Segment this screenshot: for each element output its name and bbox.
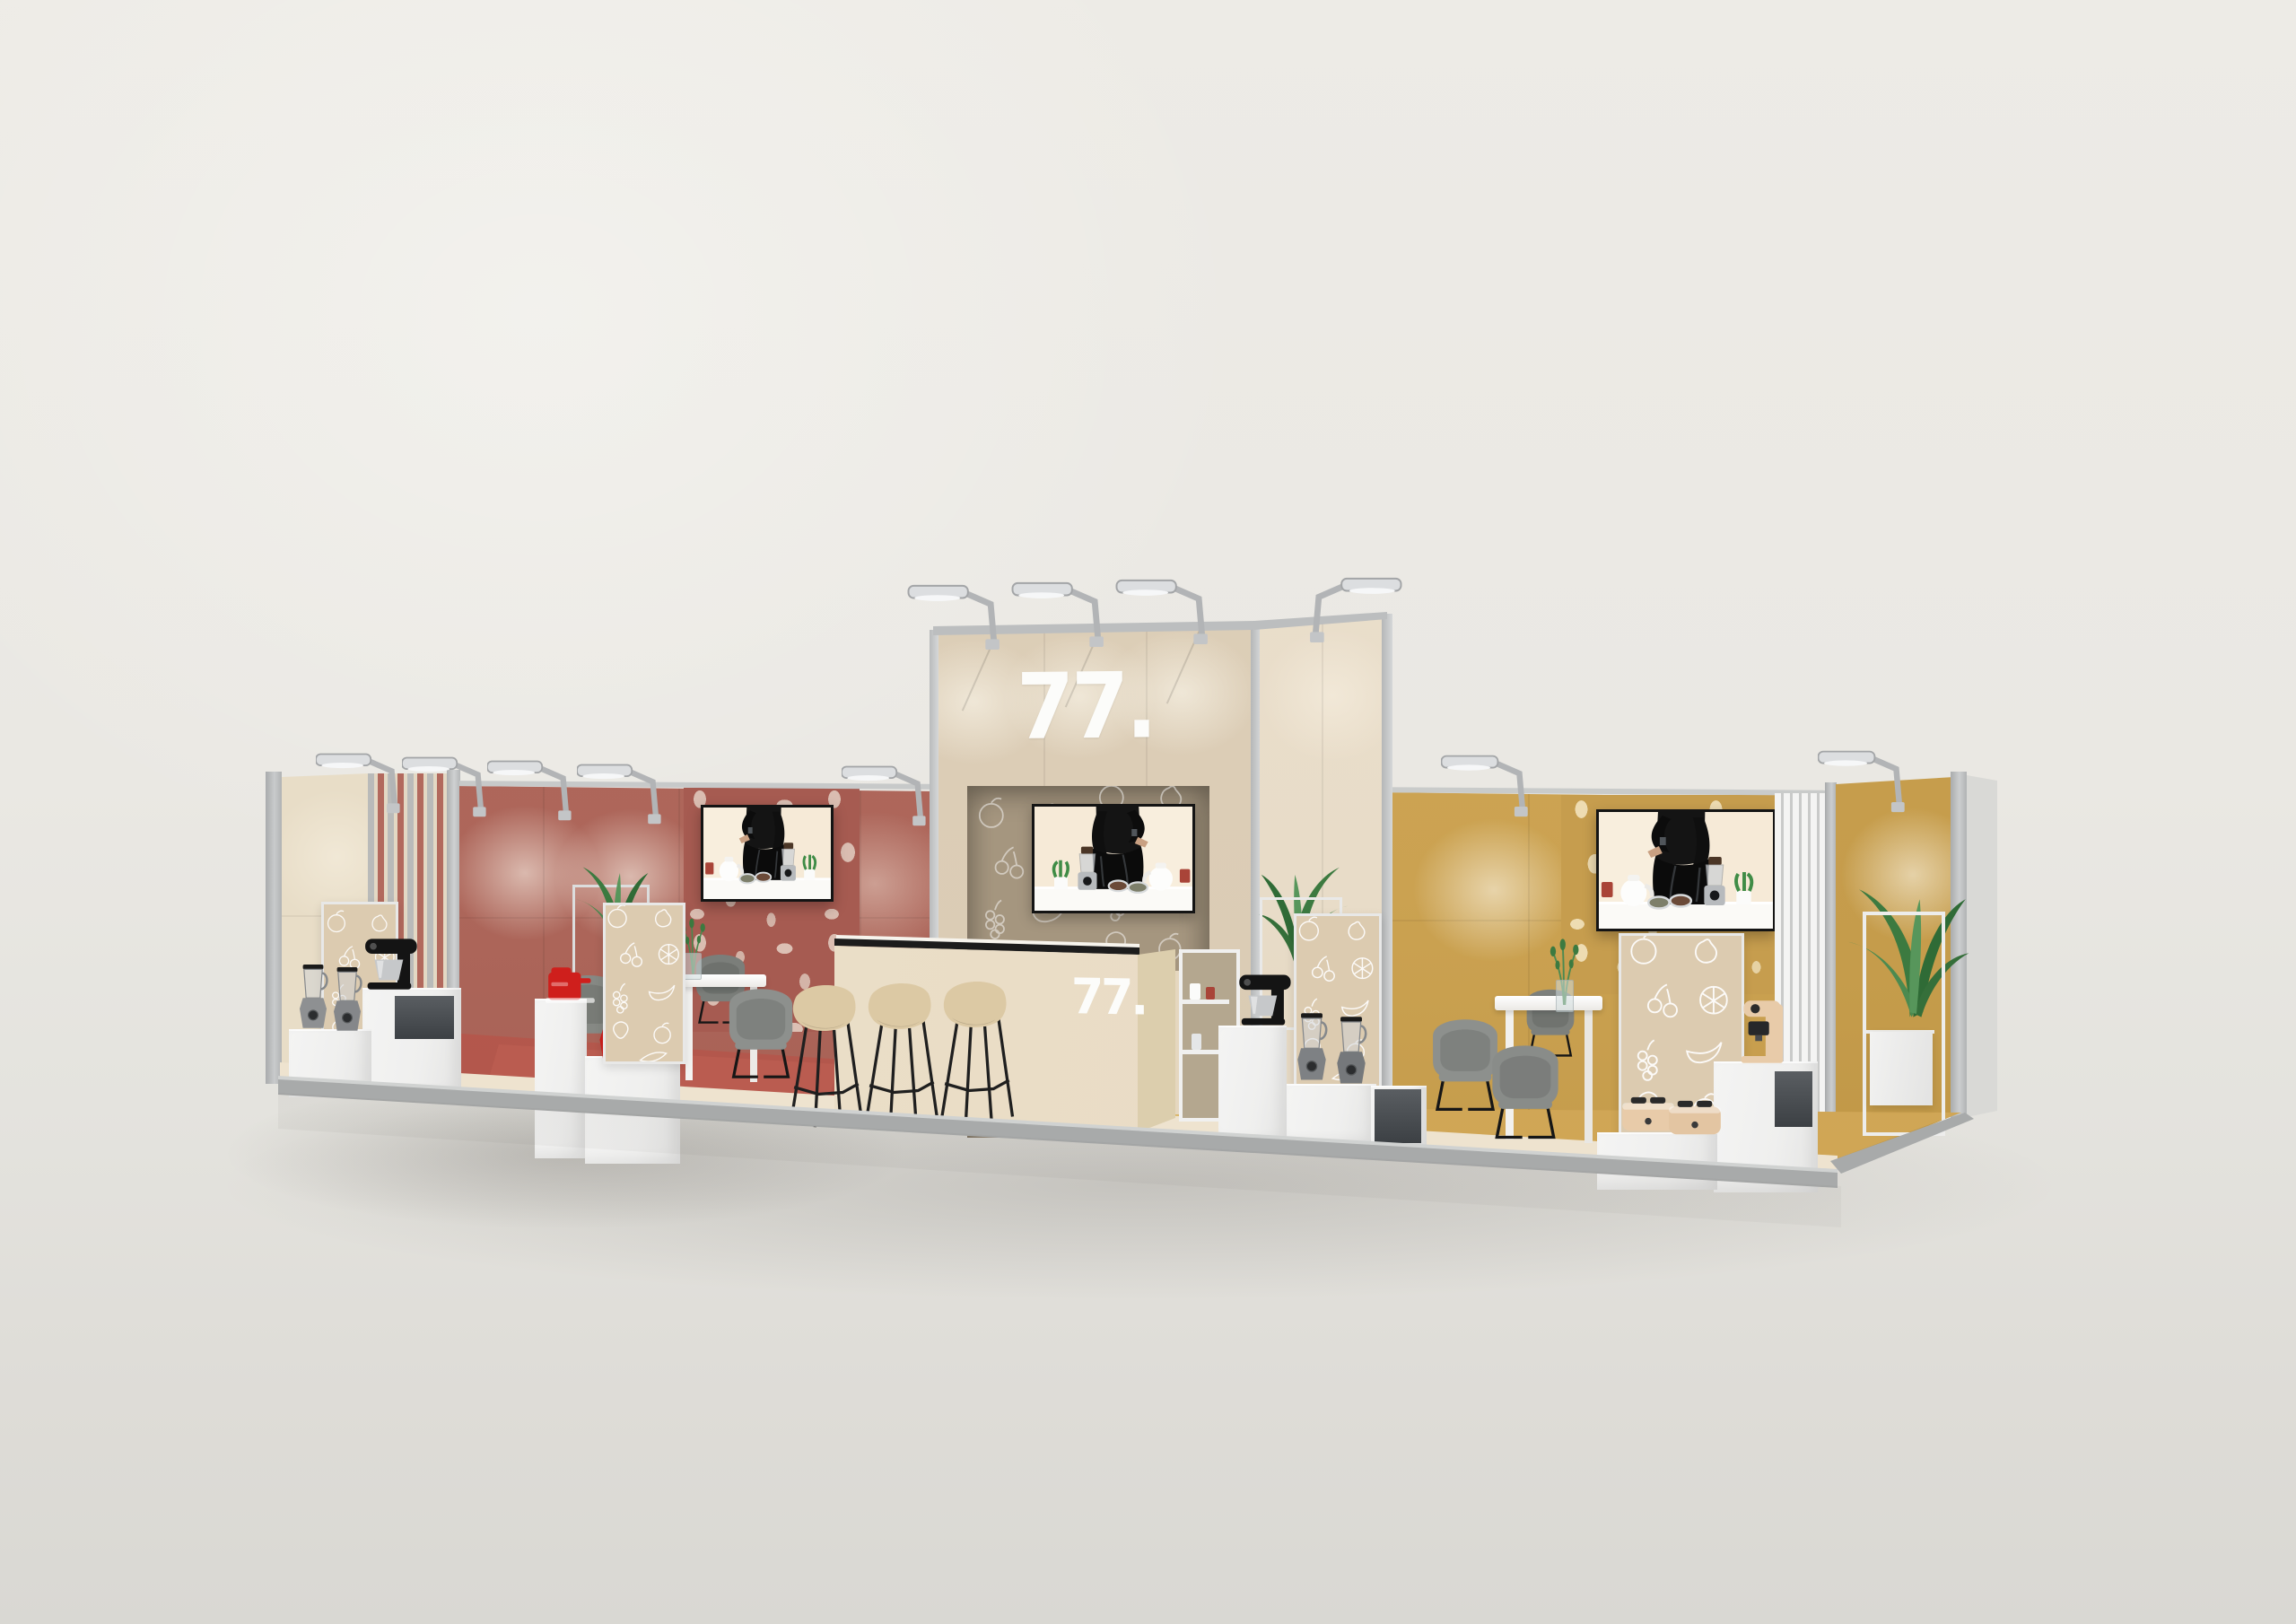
- black-stand-mixer: [357, 933, 434, 991]
- exhibition-booth-render: 77.: [0, 0, 2296, 1624]
- red-bay-tv: [701, 805, 834, 902]
- center-tv: [1032, 804, 1195, 913]
- left-end-post: [266, 772, 282, 1084]
- left-table-leg: [685, 985, 693, 1080]
- display-cube-gold-niche: [1775, 1071, 1812, 1127]
- spotlight: [842, 763, 938, 827]
- gray-dining-chair: [1480, 1016, 1570, 1156]
- plant-stand-planter-box: [1870, 1032, 1933, 1105]
- bar-stand-number: 77.: [1071, 973, 1146, 1023]
- gray-blender: [1331, 1012, 1371, 1089]
- spotlight: [316, 750, 413, 815]
- spotlight: [402, 754, 499, 818]
- silver-blender: [294, 962, 332, 1032]
- bar-stool: [930, 974, 1019, 1129]
- doodle-panel-red-bay: [603, 903, 685, 1064]
- spotlight: [487, 757, 584, 822]
- spotlight: [1818, 747, 1918, 814]
- spotlight: [577, 761, 674, 825]
- red-juicer: [542, 965, 601, 1005]
- right-table-leg: [1585, 1010, 1593, 1143]
- gold-bay-tv: [1596, 809, 1776, 931]
- spotlight: [1008, 579, 1122, 649]
- tower-corner-strip-right: [1382, 614, 1392, 1159]
- display-cube-mid-tall: [1218, 1026, 1287, 1144]
- tower-stand-number: 77.: [1017, 661, 1155, 754]
- display-cube-left-niche: [395, 996, 454, 1039]
- right-corner-post: [1825, 782, 1837, 1166]
- glass-vase: [684, 953, 702, 980]
- spotlight: [1113, 576, 1226, 646]
- gray-blender: [1292, 1008, 1331, 1086]
- display-cube-mid-step: [1287, 1084, 1376, 1145]
- cream-toaster: [1667, 1093, 1723, 1139]
- spotlight: [1441, 752, 1541, 818]
- spotlight: [1292, 574, 1405, 644]
- cream-coffee-machine: [1735, 1000, 1789, 1064]
- spotlight: [904, 581, 1017, 651]
- glass-vase: [1556, 980, 1574, 1012]
- display-cube-mid-niche: [1375, 1089, 1421, 1143]
